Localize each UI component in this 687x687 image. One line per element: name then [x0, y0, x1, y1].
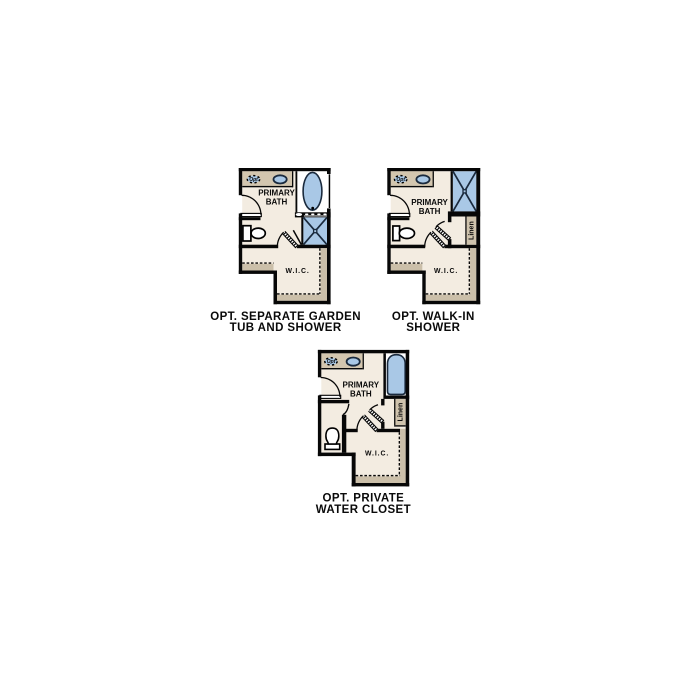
- svg-text:WATER CLOSET: WATER CLOSET: [316, 504, 411, 516]
- svg-text:SHOWER: SHOWER: [406, 322, 460, 334]
- svg-text:Opt: Opt: [327, 359, 336, 365]
- svg-text:PRIMARY: PRIMARY: [343, 380, 380, 389]
- svg-text:PRIMARY: PRIMARY: [411, 198, 448, 207]
- svg-text:Opt: Opt: [249, 177, 258, 183]
- svg-text:BATH: BATH: [419, 207, 441, 216]
- svg-text:W.I.C.: W.I.C.: [286, 268, 310, 275]
- svg-text:BATH: BATH: [350, 390, 372, 399]
- svg-text:Linen: Linen: [398, 403, 405, 422]
- svg-text:OPT. SEPARATE GARDEN: OPT. SEPARATE GARDEN: [210, 311, 361, 323]
- svg-text:W.I.C.: W.I.C.: [434, 268, 458, 275]
- svg-text:PRIMARY: PRIMARY: [258, 188, 295, 197]
- svg-text:OPT. WALK-IN: OPT. WALK-IN: [392, 311, 475, 323]
- svg-text:W.I.C.: W.I.C.: [365, 451, 389, 458]
- svg-text:Linen: Linen: [469, 221, 476, 240]
- svg-text:TUB AND SHOWER: TUB AND SHOWER: [230, 322, 342, 334]
- svg-text:BATH: BATH: [266, 198, 288, 207]
- svg-text:Opt: Opt: [396, 177, 405, 183]
- svg-text:OPT. PRIVATE: OPT. PRIVATE: [323, 493, 405, 505]
